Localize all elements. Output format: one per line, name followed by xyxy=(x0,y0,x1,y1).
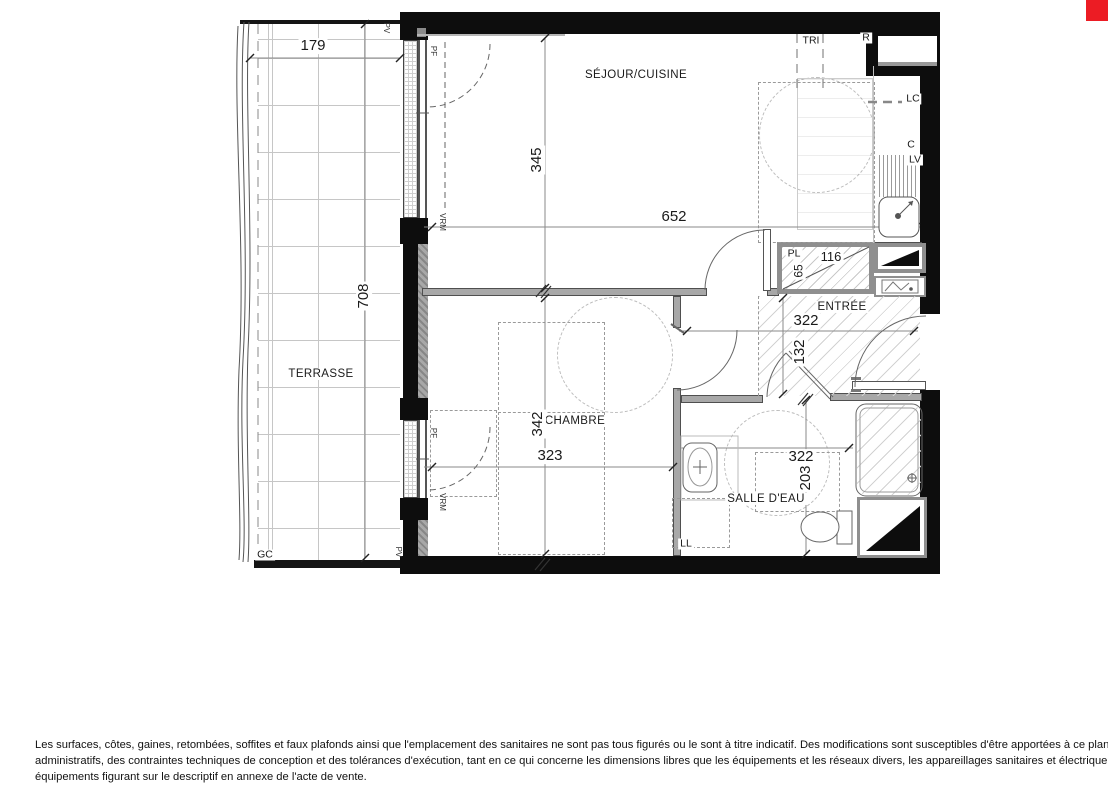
window-labels-layer: PFVRMPFVRMPVPV xyxy=(0,0,1108,800)
legal-disclaimer: Les surfaces, côtes, gaines, retombées, … xyxy=(35,737,1097,785)
window-label: PF xyxy=(429,46,437,56)
window-label: PV xyxy=(382,23,390,34)
disclaimer-line-3: équipements figurant sur le descriptif e… xyxy=(35,769,1097,785)
window-label: PF xyxy=(429,428,437,438)
disclaimer-line-2: administratifs, des contraintes techniqu… xyxy=(35,753,1097,769)
floor-plan-page: SÉJOUR/CUISINETERRASSECHAMBRESALLE D'EAU… xyxy=(0,0,1108,800)
window-label: PV xyxy=(394,547,402,558)
disclaimer-line-1: Les surfaces, côtes, gaines, retombées, … xyxy=(35,737,1097,753)
window-label: VRM xyxy=(438,493,446,511)
window-label: VRM xyxy=(438,213,446,231)
